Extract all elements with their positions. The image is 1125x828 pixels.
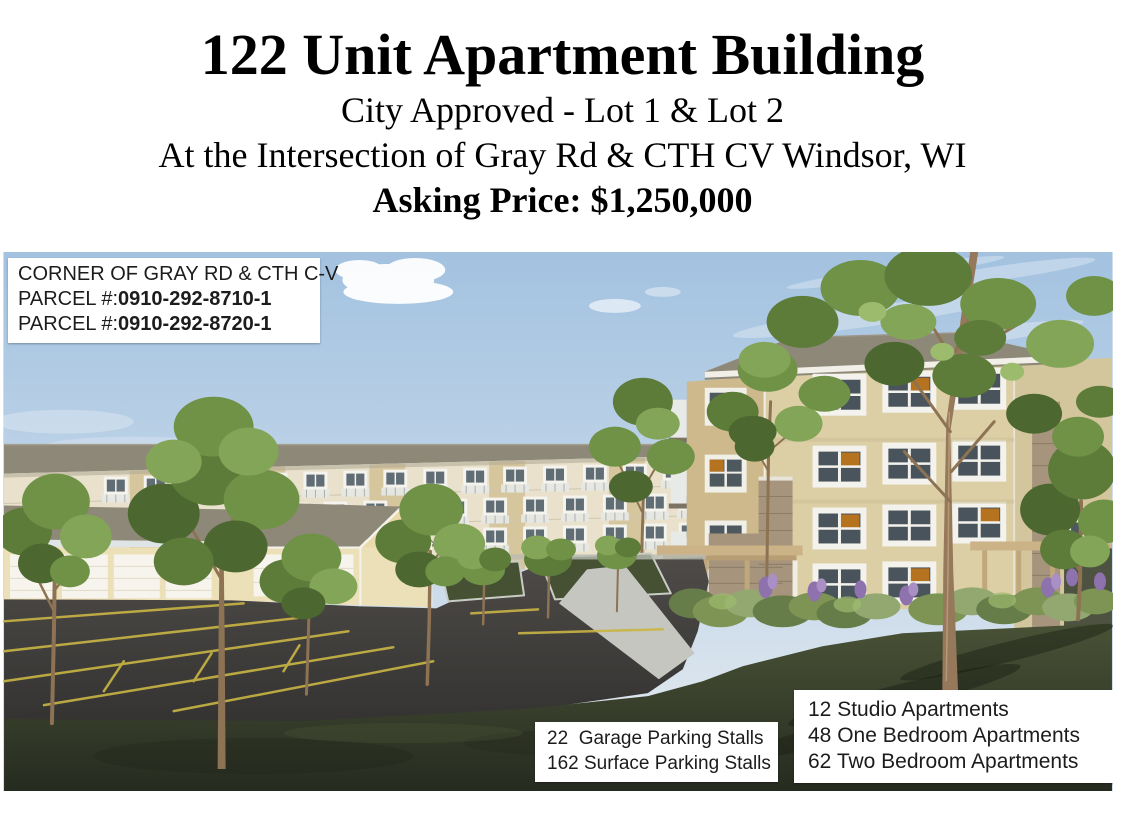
location-subtitle: At the Intersection of Gray Rd & CTH CV …: [0, 133, 1125, 178]
corner-label: CORNER OF GRAY RD & CTH C-V: [18, 262, 310, 287]
approval-subtitle: City Approved - Lot 1 & Lot 2: [0, 88, 1125, 133]
parking-stats-overlay: 22 Garage Parking Stalls 162 Surface Par…: [535, 722, 778, 782]
surface-parking-line: 162 Surface Parking Stalls: [547, 751, 778, 776]
parcel-number-2: PARCEL #:0910-292-8720-1: [18, 312, 310, 337]
one-bedroom-units-line: 48 One Bedroom Apartments: [808, 723, 1113, 749]
flyer-header: 122 Unit Apartment Building City Approve…: [0, 22, 1125, 223]
parcel-info-overlay: CORNER OF GRAY RD & CTH C-V PARCEL #:091…: [8, 258, 320, 343]
asking-price: Asking Price: $1,250,000: [0, 178, 1125, 223]
property-rendering: CORNER OF GRAY RD & CTH C-V PARCEL #:091…: [3, 252, 1113, 791]
garage-parking-line: 22 Garage Parking Stalls: [547, 726, 778, 751]
parcel-number-1: PARCEL #:0910-292-8710-1: [18, 287, 310, 312]
two-bedroom-units-line: 62 Two Bedroom Apartments: [808, 749, 1113, 775]
unit-mix-overlay: 12 Studio Apartments 48 One Bedroom Apar…: [794, 690, 1113, 783]
flyer-page: 122 Unit Apartment Building City Approve…: [0, 0, 1125, 828]
studio-units-line: 12 Studio Apartments: [808, 697, 1113, 723]
page-title: 122 Unit Apartment Building: [0, 22, 1125, 88]
